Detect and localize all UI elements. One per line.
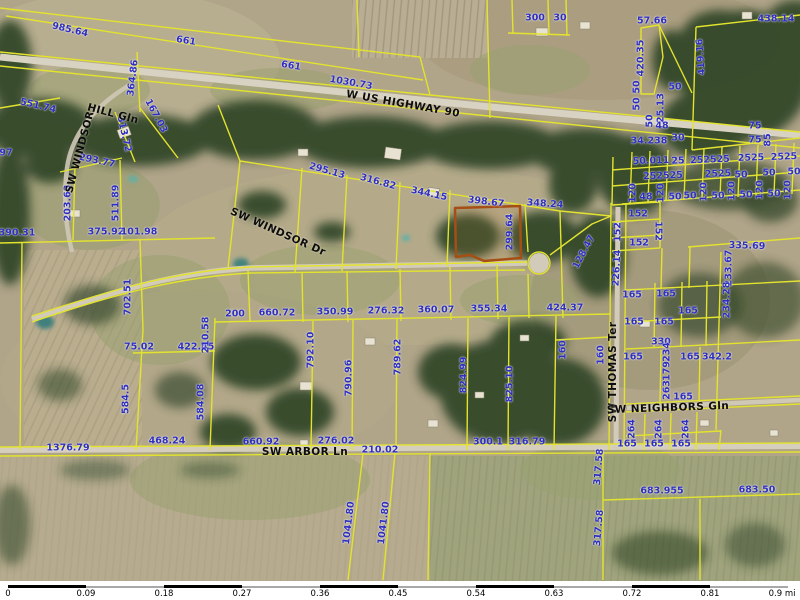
scale-tick-label: 0.9 mi [769,589,796,599]
scale-bar-segment [398,586,476,588]
scale-tick-label: 0.81 [701,589,720,599]
scale-tick-label: 0.09 [77,589,96,599]
scale-bar-segment [632,585,710,588]
scale-bar-segment [554,586,632,588]
scale-tick-label: 0.63 [545,589,564,599]
scale-bar-line [8,585,788,588]
aerial-map [0,0,800,581]
scale-bar-segment [710,586,788,588]
scale-bar: 00.090.180.270.360.450.540.630.720.810.9… [0,581,800,600]
scale-tick-label: 0.72 [623,589,642,599]
highlighted-parcel[interactable] [455,206,521,261]
scale-tick-label: 0.36 [311,589,330,599]
scale-tick-label: 0.18 [155,589,174,599]
scale-tick-label: 0.27 [233,589,252,599]
scale-bar-segment [164,585,242,588]
scale-bar-segment [476,585,554,588]
scale-tick-label: 0 [5,589,10,599]
scale-bar-segment [320,585,398,588]
scale-tick-label: 0.45 [389,589,408,599]
scale-bar-segment [8,585,86,588]
scale-bar-segment [242,586,320,588]
scale-tick-label: 0.54 [467,589,486,599]
scale-bar-segment [86,586,164,588]
map-viewport[interactable]: 985.64661661364.861030.733003057.66438.1… [0,0,800,600]
